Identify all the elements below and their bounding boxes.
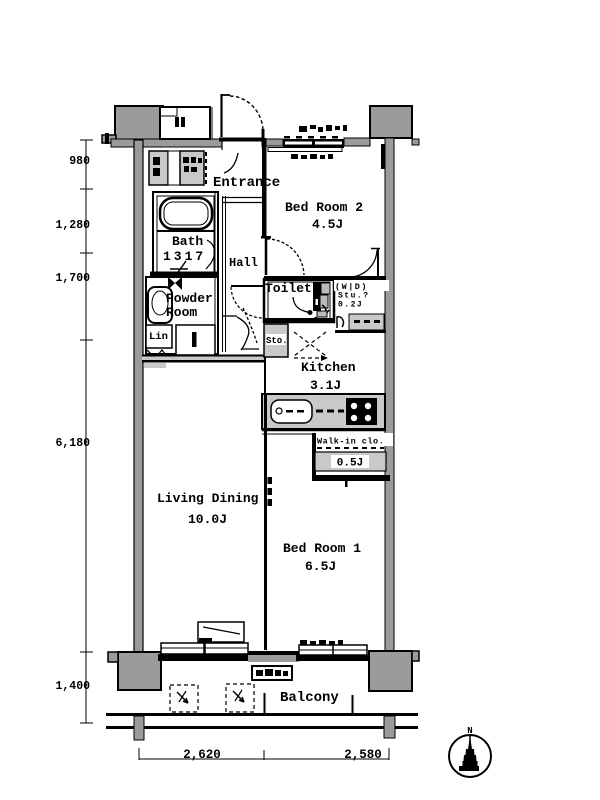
svg-text:Sto.: Sto. [266,336,288,346]
svg-text:Kitchen: Kitchen [301,360,356,375]
svg-text:N: N [467,726,472,736]
svg-text:1,280: 1,280 [55,219,90,232]
svg-text:Room: Room [166,305,197,320]
svg-text:Bed Room 1: Bed Room 1 [283,541,361,556]
svg-text:10.0J: 10.0J [188,512,227,527]
svg-text:Lin: Lin [149,331,168,343]
svg-text:Walk-in clo.: Walk-in clo. [317,437,384,447]
svg-text:Hall: Hall [229,256,258,270]
svg-text:2,620: 2,620 [183,748,221,762]
svg-text:Stu.?: Stu.? [338,292,370,301]
svg-text:3.1J: 3.1J [310,378,341,393]
svg-text:1,400: 1,400 [55,680,90,693]
svg-text:(W|D): (W|D) [335,282,368,292]
svg-text:Bed Room 2: Bed Room 2 [285,200,363,215]
svg-text:6,180: 6,180 [55,437,90,450]
svg-text:4.5J: 4.5J [312,217,343,232]
svg-text:2,580: 2,580 [344,748,382,762]
svg-text:Living Dining: Living Dining [157,491,259,506]
svg-text:0.5J: 0.5J [337,458,363,470]
svg-text:6.5J: 6.5J [305,559,336,574]
svg-text:0.2J: 0.2J [338,301,363,310]
svg-text:Powder: Powder [166,291,213,306]
svg-text:Entrance: Entrance [213,175,280,191]
svg-text:Toilet: Toilet [265,281,312,296]
svg-text:Balcony: Balcony [280,690,339,706]
svg-text:980: 980 [69,155,90,168]
svg-text:1,700: 1,700 [55,272,90,285]
svg-text:Bath: Bath [172,234,203,249]
